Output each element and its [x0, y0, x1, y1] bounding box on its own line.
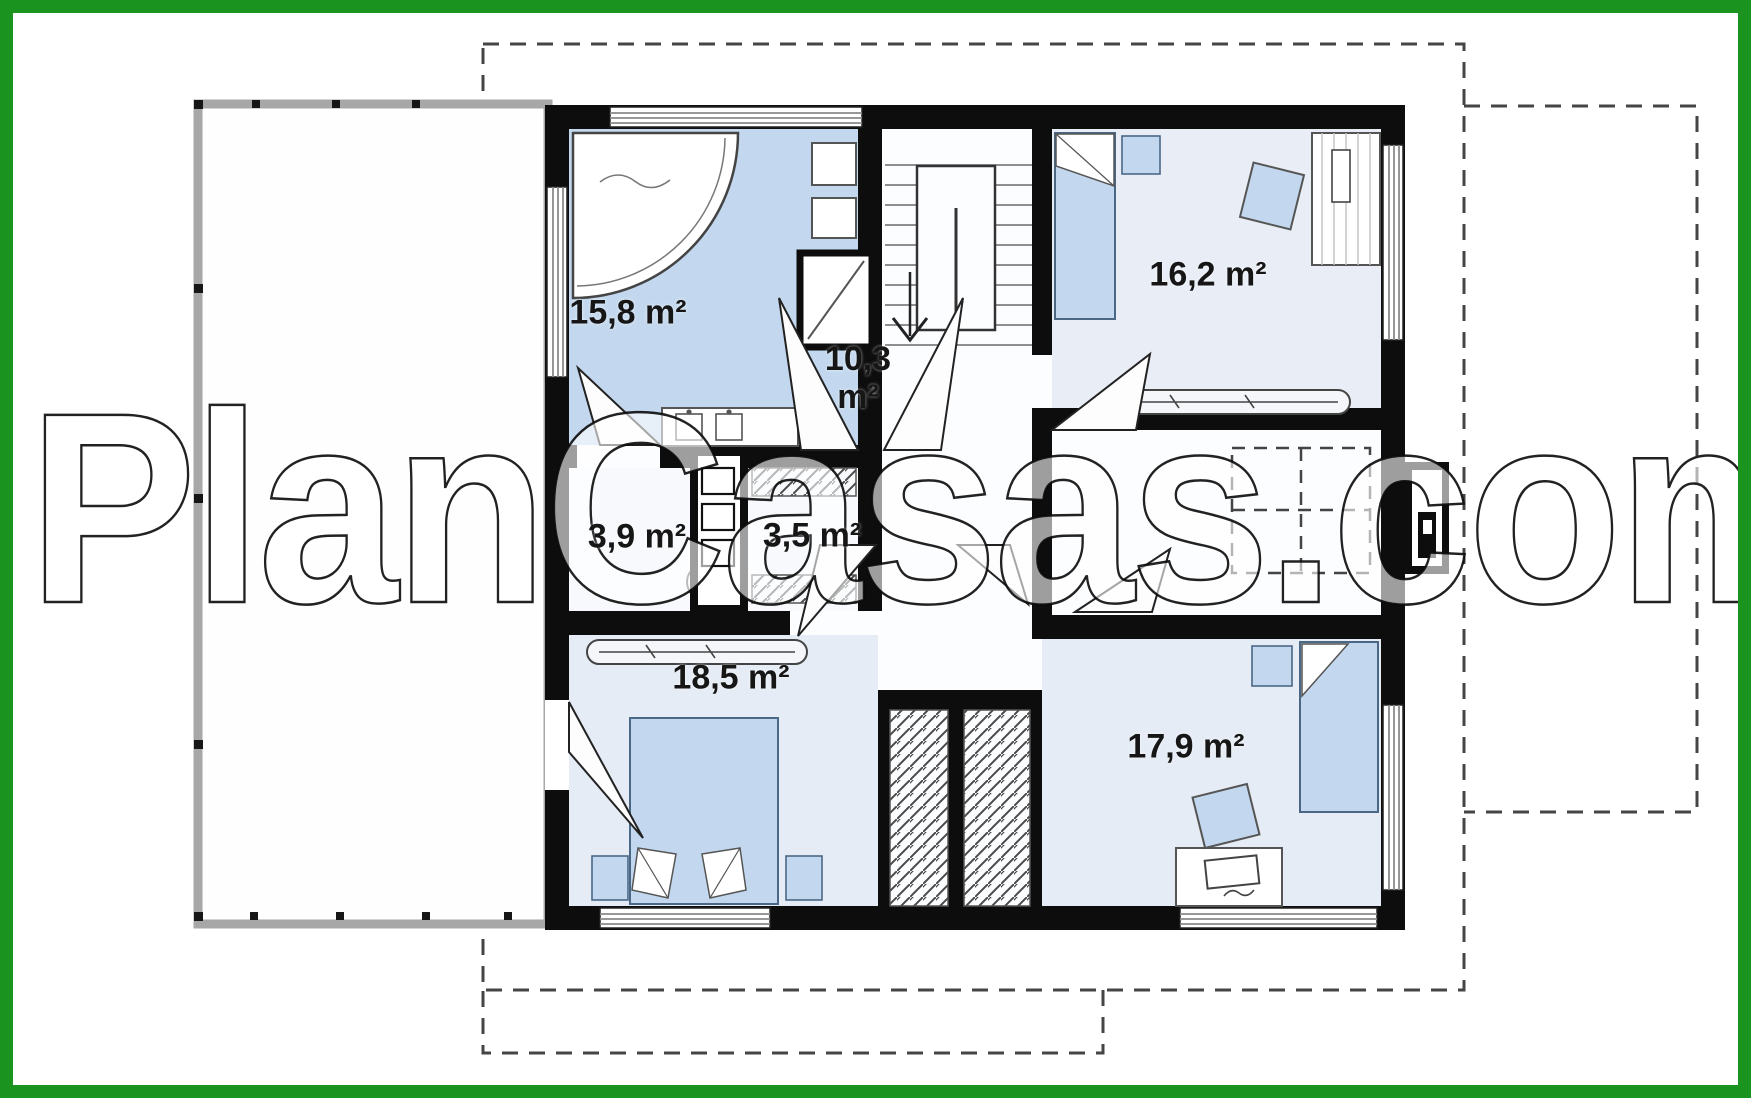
window-left-bathroom: [547, 187, 567, 377]
window-top: [610, 107, 862, 127]
terrace: [194, 100, 548, 924]
floor-plan-drawing: [0, 0, 1751, 1098]
terrace-door-opening: [545, 700, 569, 790]
green-border-top: [0, 0, 1751, 13]
room-area-label-closet: 3,5 m²: [763, 517, 861, 556]
floor-plan-page: PlanCasas.com 15,8 m² 16,2 m² 10,3 m² 3,…: [0, 0, 1751, 1098]
shower: [800, 253, 872, 347]
room-area-label-wc: 3,9 m²: [588, 518, 686, 557]
double-sink-vanity: [662, 408, 798, 446]
room-area-label-hallway: 10,3 m²: [814, 340, 902, 416]
green-border-right: [1738, 0, 1751, 1098]
window-bottom-left: [600, 908, 770, 928]
desk-bottom-right: [1176, 848, 1282, 906]
chimney: [1405, 462, 1449, 574]
room-area-label-bedroom-top-right: 16,2 m²: [1149, 256, 1266, 295]
room-area-label-bedroom-bottom-right: 17,9 m²: [1127, 728, 1244, 767]
room-area-label-bedroom-bottom-left: 18,5 m²: [672, 659, 789, 698]
window-right-bedroom-top: [1383, 145, 1403, 340]
window-right-bedroom-bottom: [1383, 705, 1403, 890]
window-bottom-right: [1180, 908, 1377, 928]
service-column: [690, 448, 748, 613]
green-border-bottom: [0, 1085, 1751, 1098]
bathroom-shelf: [812, 198, 856, 238]
room-area-label-bathroom: 15,8 m²: [569, 294, 686, 333]
green-border-left: [0, 0, 13, 1098]
desk-top-right: [1312, 133, 1380, 265]
bathroom-shelf: [812, 143, 856, 185]
